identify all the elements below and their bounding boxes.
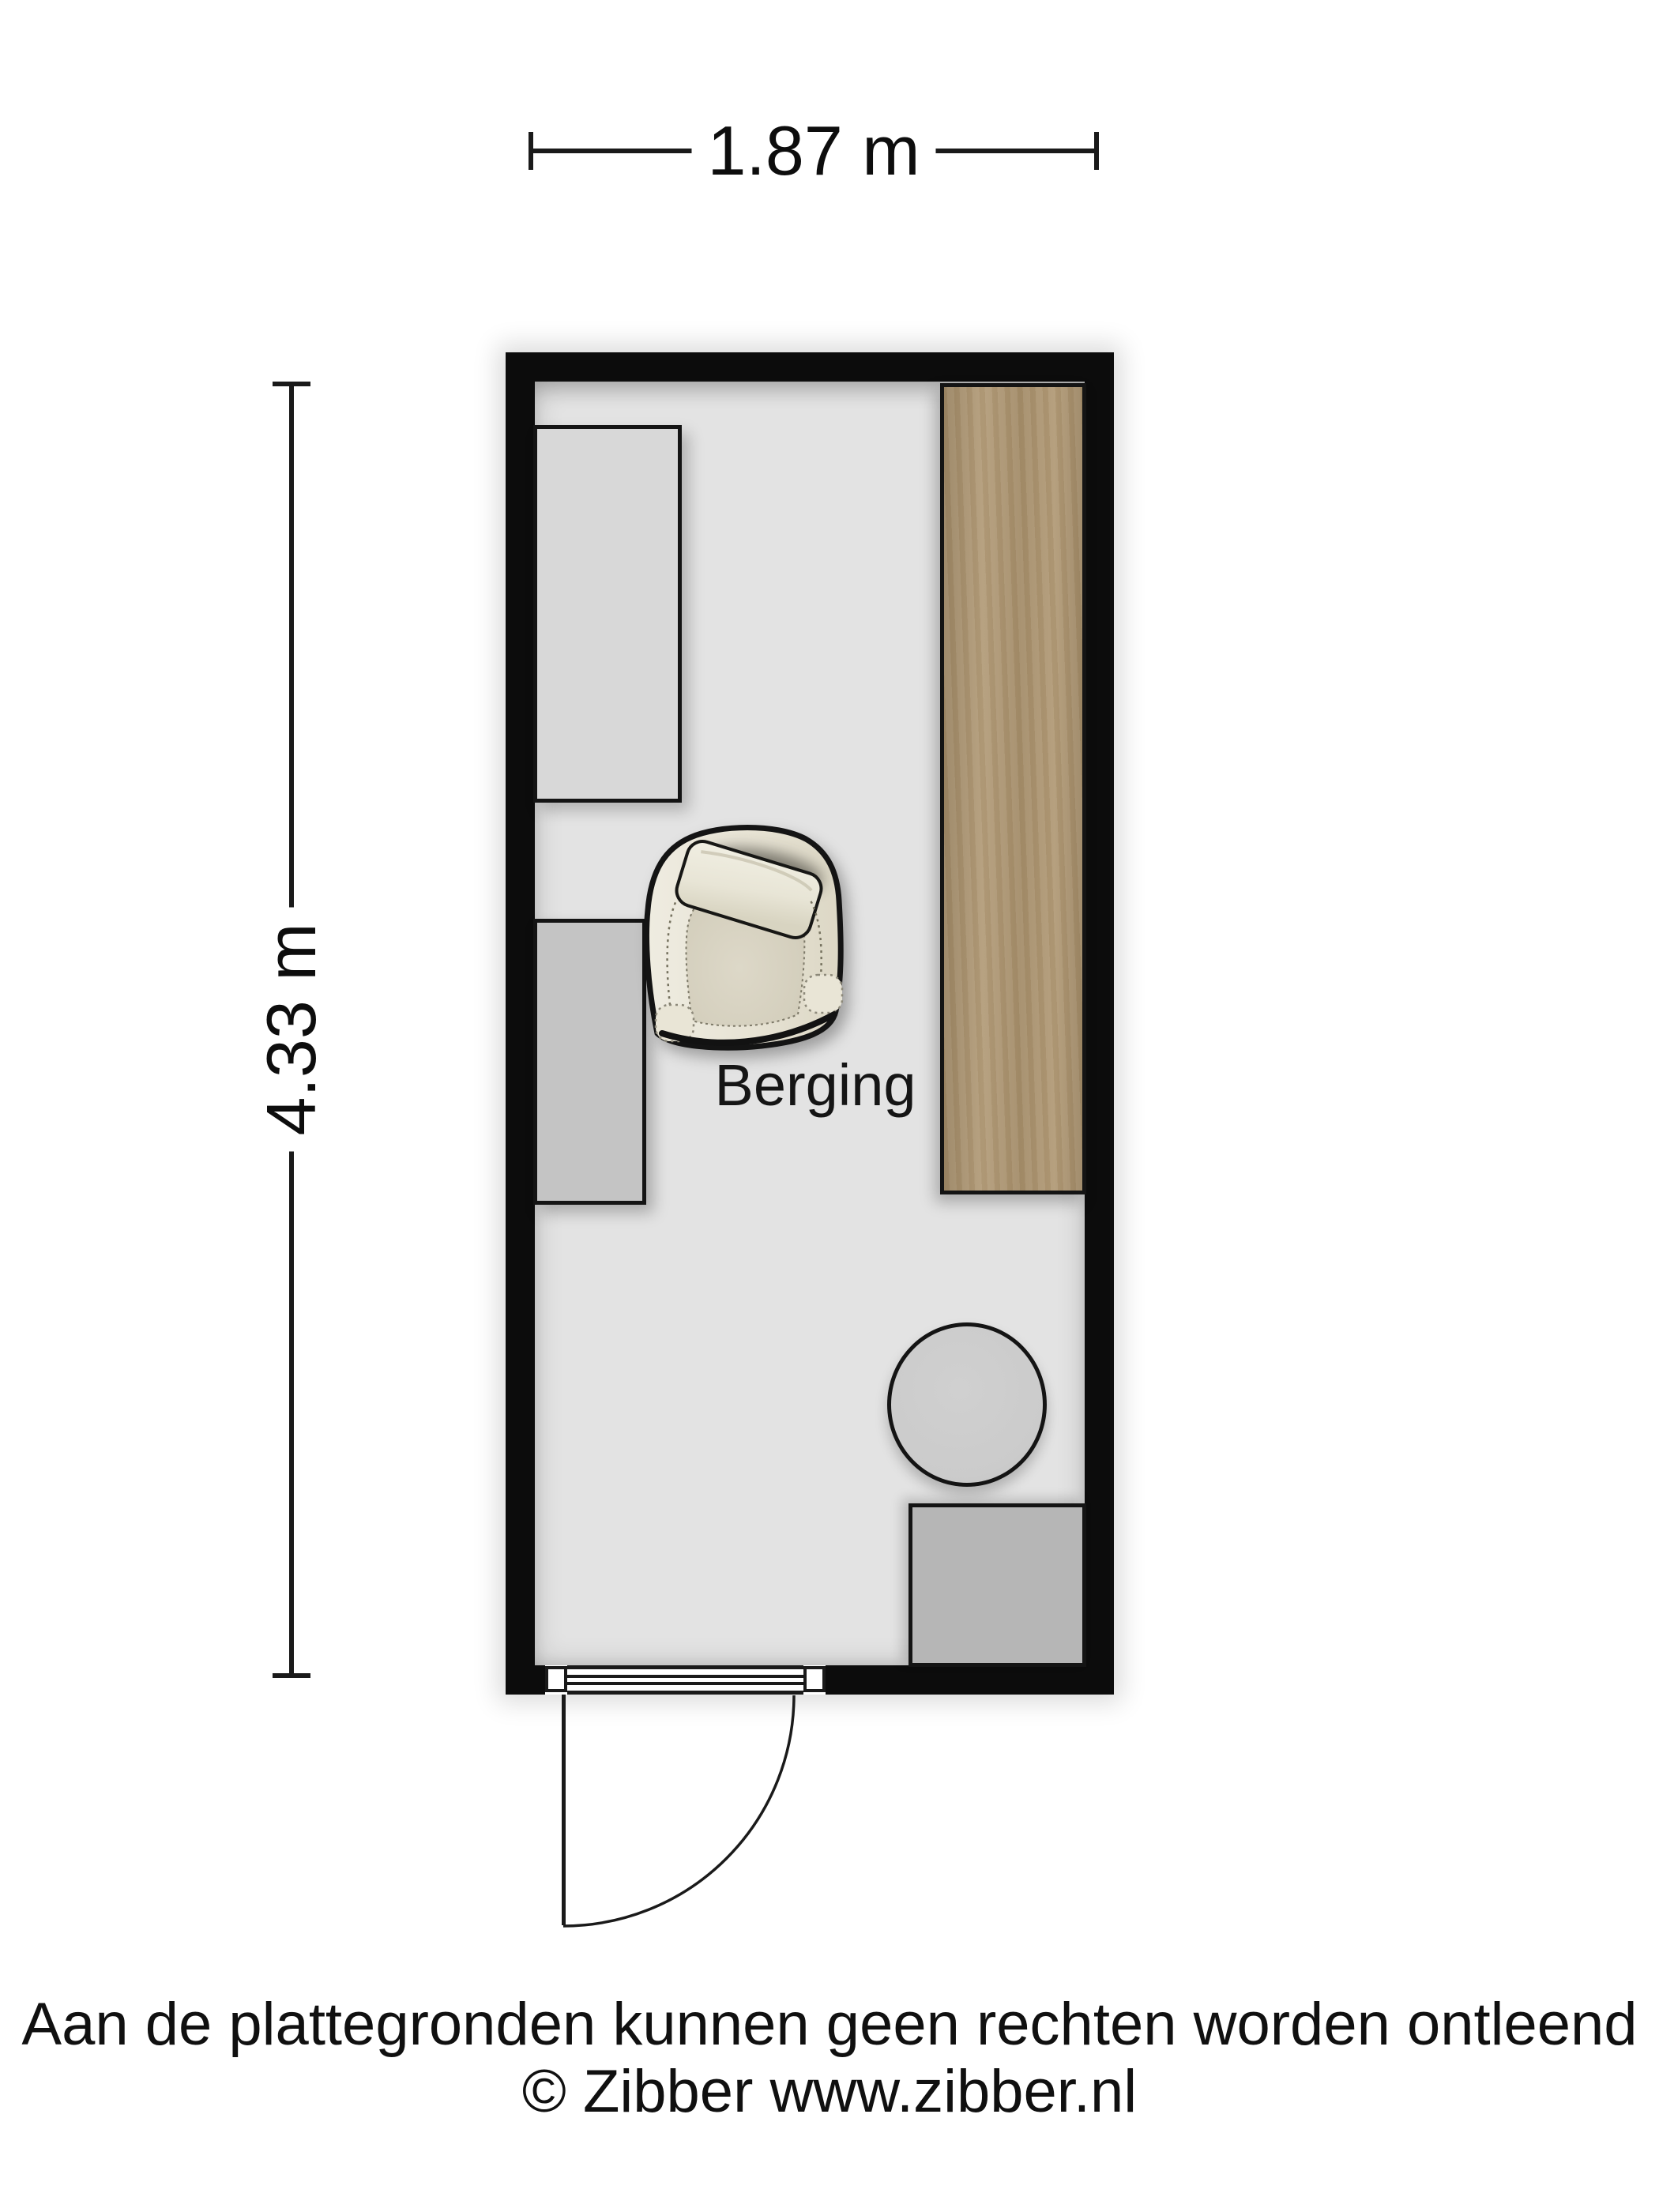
height-dimension-tick-top xyxy=(273,382,310,386)
width-dimension-tick-left xyxy=(529,132,533,170)
room-label: Berging xyxy=(657,1051,973,1119)
width-dimension-label: 1.87 m xyxy=(691,107,935,194)
door-post-right xyxy=(803,1666,826,1692)
cabinet-icon xyxy=(533,425,682,803)
width-dimension-tick-right xyxy=(1094,132,1099,170)
height-dimension-label: 4.33 m xyxy=(248,907,335,1151)
armchair-icon xyxy=(641,822,847,1051)
floorplan-page: 1.87 m 4.33 m xyxy=(0,0,1659,2212)
side-table-icon xyxy=(533,919,646,1205)
disclaimer: Aan de plattegronden kunnen geen rechten… xyxy=(0,1991,1659,2125)
disclaimer-line2: © Zibber www.zibber.nl xyxy=(0,2058,1659,2125)
storage-box-icon xyxy=(908,1503,1086,1667)
door-post-left xyxy=(545,1666,567,1692)
round-table-icon xyxy=(887,1322,1047,1487)
door-swing-arc-icon xyxy=(559,1691,798,1930)
room-outline: Berging xyxy=(506,352,1114,1695)
door-threshold xyxy=(567,1665,803,1695)
height-dimension-tick-bottom xyxy=(273,1673,310,1678)
disclaimer-line1: Aan de plattegronden kunnen geen rechten… xyxy=(0,1991,1659,2058)
